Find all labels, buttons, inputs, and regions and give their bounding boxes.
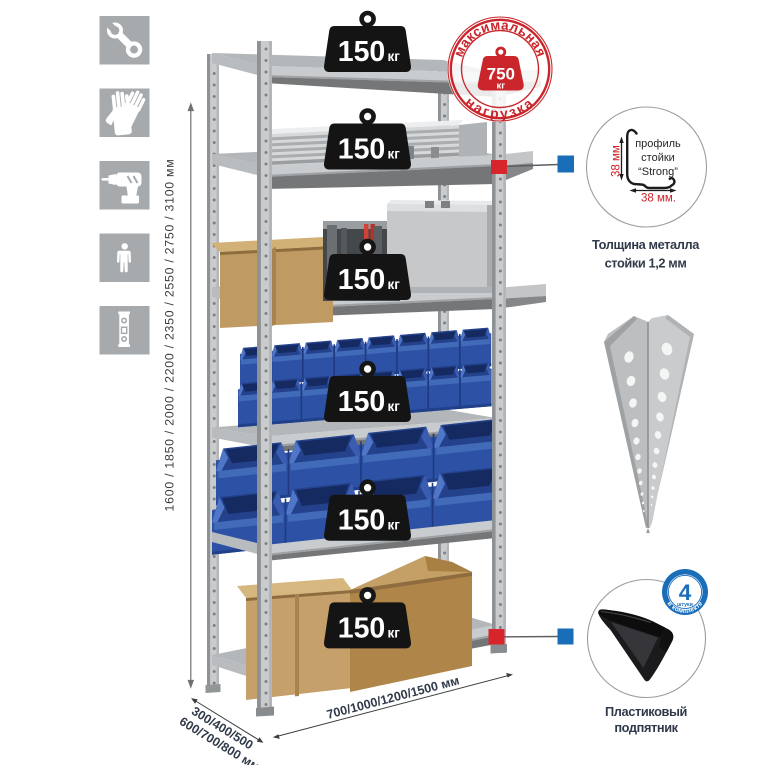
svg-text:“Strong”: “Strong” [638, 166, 678, 178]
svg-text:кг: кг [388, 399, 401, 414]
svg-text:150: 150 [338, 612, 386, 644]
svg-text:150: 150 [338, 386, 386, 418]
svg-text:Пластиковый: Пластиковый [605, 704, 687, 719]
svg-text:38 мм.: 38 мм. [641, 193, 676, 205]
svg-text:кг: кг [388, 625, 401, 640]
svg-text:150: 150 [338, 505, 386, 537]
svg-text:150: 150 [338, 36, 386, 68]
svg-text:кг: кг [388, 147, 401, 162]
svg-text:кг: кг [496, 81, 505, 92]
svg-text:1600 / 1850 / 2000 / 2200 / 23: 1600 / 1850 / 2000 / 2200 / 2350 / 2550 … [163, 159, 177, 512]
svg-text:подпятник: подпятник [614, 720, 678, 735]
svg-text:38 мм: 38 мм [611, 145, 623, 177]
svg-text:кг: кг [388, 277, 401, 292]
svg-text:Толщина металла: Толщина металла [592, 237, 700, 252]
svg-text:стойки: стойки [641, 152, 675, 164]
svg-text:150: 150 [338, 264, 386, 296]
svg-text:профиль: профиль [635, 138, 681, 150]
svg-text:стойки 1,2 мм: стойки 1,2 мм [605, 256, 687, 271]
svg-text:кг: кг [388, 518, 401, 533]
svg-text:150: 150 [338, 134, 386, 166]
svg-text:кг: кг [388, 49, 401, 64]
